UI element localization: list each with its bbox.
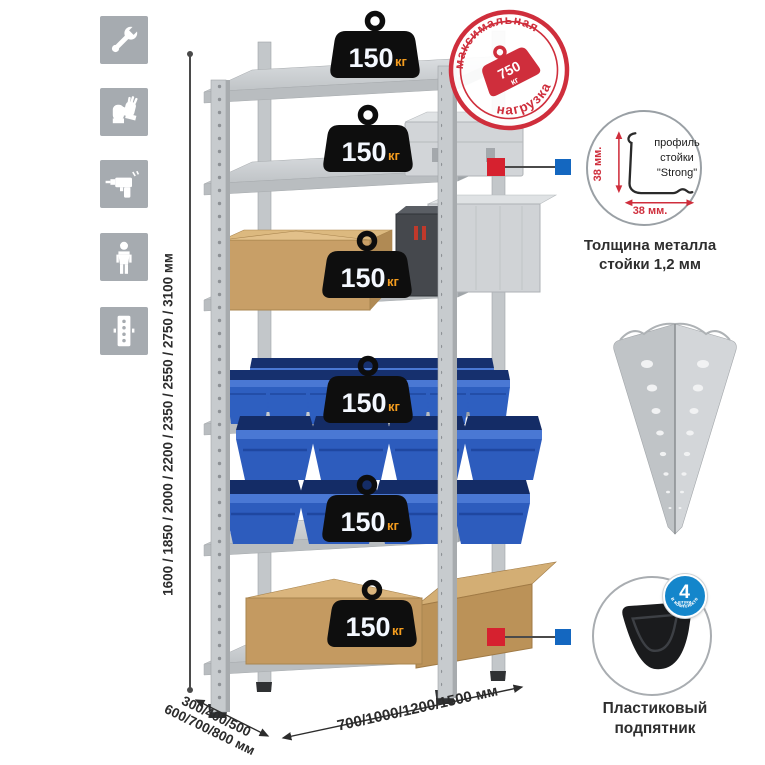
profile-vertical-dimension: 38 мм. (592, 134, 604, 194)
svg-text:кг: кг (388, 148, 401, 163)
weight-handle-icon (361, 359, 376, 374)
svg-text:кг: кг (392, 623, 405, 638)
shelf-load-badge: 150 кг (325, 8, 425, 86)
weight-handle-icon (365, 583, 380, 598)
svg-text:150: 150 (340, 507, 385, 537)
included-count-badge: 4 штуки в комплекте (663, 574, 707, 618)
metal-cases (396, 195, 556, 296)
max-load-stamp: максимальная нагрузка 750 кг (447, 8, 571, 132)
callout-marker-blue (555, 159, 571, 175)
weight-handle-icon (361, 108, 376, 123)
shelf-load-badge: 150 кг (322, 577, 422, 655)
svg-text:150: 150 (341, 137, 386, 167)
person-icon (100, 233, 148, 281)
svg-text:150: 150 (340, 263, 385, 293)
height-dimension-label: 1600 / 1850 / 2000 / 2200 / 2350 / 2550 … (161, 235, 176, 615)
callout-line-profile (497, 166, 559, 168)
callout-line-foot (497, 636, 559, 638)
shelf-load-badge: 150 кг (317, 472, 417, 550)
profile-label: профиль стойки "Strong" (640, 136, 714, 181)
svg-text:кг: кг (395, 54, 408, 69)
shelf-load-badge: 150 кг (318, 102, 418, 180)
svg-text:кг: кг (387, 518, 400, 533)
weight-handle-icon (368, 14, 383, 29)
drill-icon (100, 160, 148, 208)
profile-caption: Толщина металла стойки 1,2 мм (570, 236, 730, 274)
callout-marker-red (487, 628, 505, 646)
height-dimension-line (189, 54, 191, 690)
gloves-icon (100, 88, 148, 136)
svg-text:150: 150 (345, 612, 390, 642)
shelving-infographic: 1600 / 1850 / 2000 / 2200 / 2350 / 2550 … (0, 0, 765, 765)
height-dimension-end-dot (187, 51, 193, 57)
callout-marker-red (487, 158, 505, 176)
weight-handle-icon (360, 478, 375, 493)
wrench-icon (100, 16, 148, 64)
foot-caption: Пластиковый подпятник (575, 699, 735, 739)
weight-handle-icon (360, 234, 375, 249)
profile-horizontal-dimension: 38 мм. (610, 205, 690, 217)
corner-post-image (600, 312, 750, 537)
svg-text:150: 150 (348, 43, 393, 73)
perforated-profile-icon (100, 307, 148, 355)
svg-text:кг: кг (387, 274, 400, 289)
svg-text:150: 150 (341, 388, 386, 418)
callout-marker-blue (555, 629, 571, 645)
shelf-load-badge: 150 кг (318, 353, 418, 431)
svg-text:кг: кг (388, 399, 401, 414)
shelf-load-badge: 150 кг (317, 228, 417, 306)
